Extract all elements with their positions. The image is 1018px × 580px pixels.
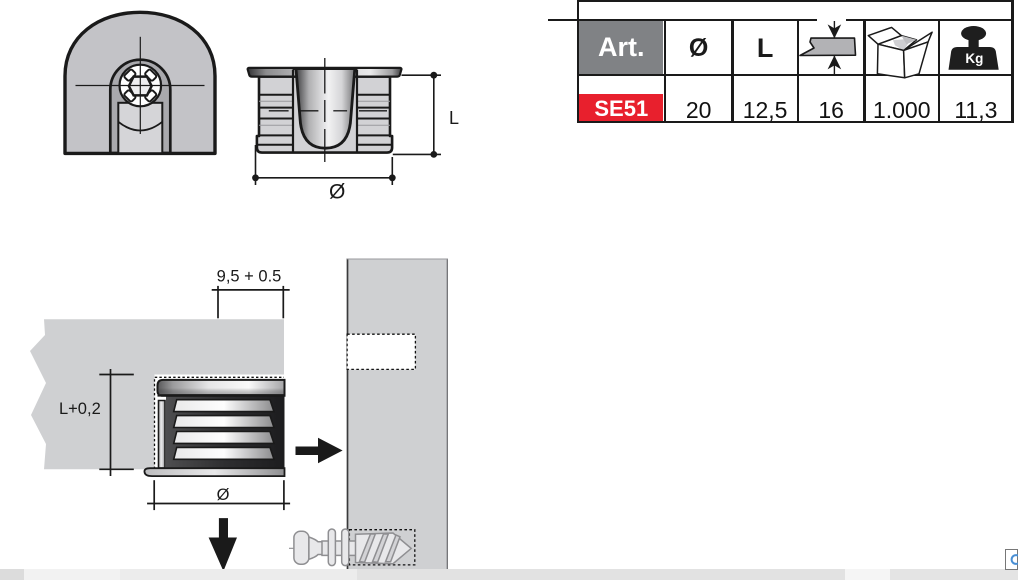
svg-text:Ø: Ø (329, 181, 345, 204)
svg-text:9,5 + 0.5: 9,5 + 0.5 (217, 268, 282, 286)
svg-text:Ø: Ø (217, 486, 230, 504)
svg-text:L+0,2: L+0,2 (59, 400, 101, 418)
svg-text:Kg: Kg (965, 51, 983, 66)
